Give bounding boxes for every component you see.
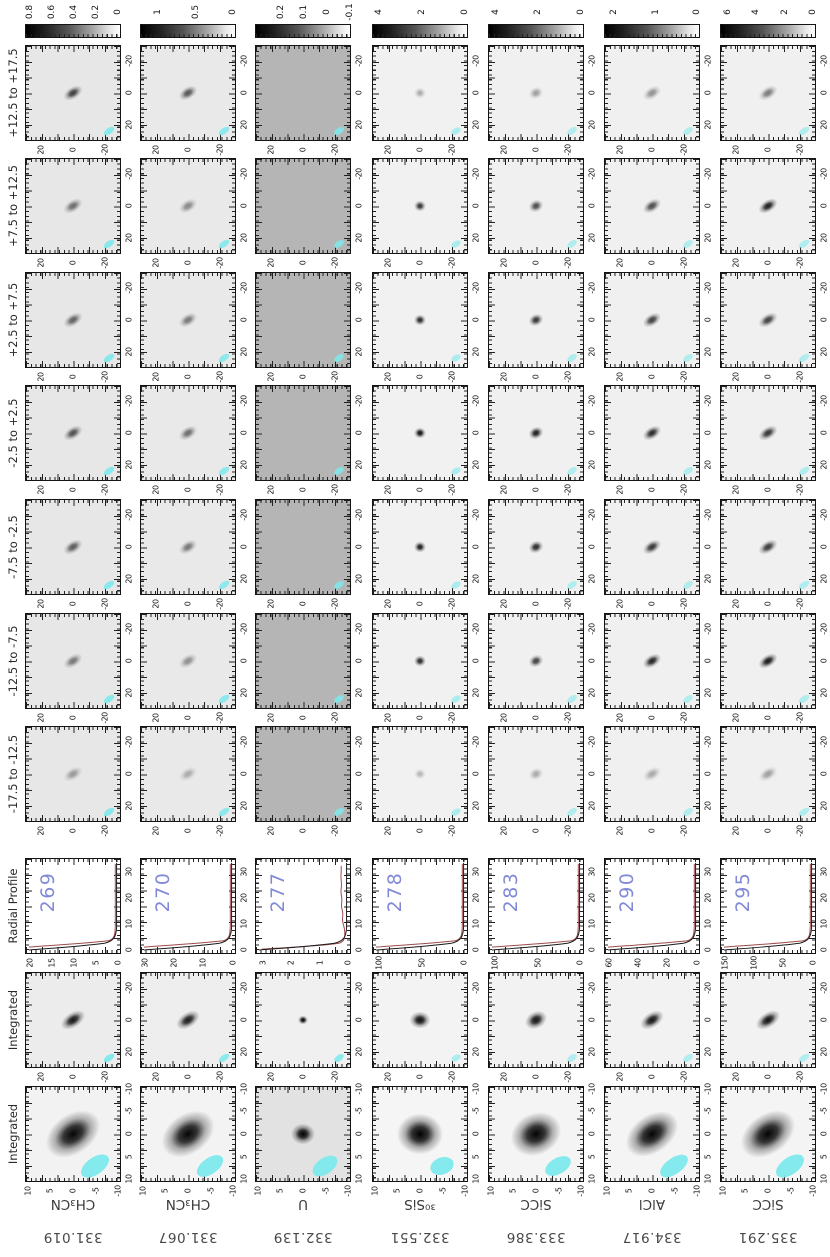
tick-marks xyxy=(26,614,120,620)
axis-tick-label-text: 0 xyxy=(240,318,249,323)
tick-marks xyxy=(605,1087,611,1181)
channel-map-panel xyxy=(604,385,700,481)
colorbar-tick-label-text: 2 xyxy=(417,9,427,15)
tick-marks xyxy=(26,386,32,480)
species-label-text: U xyxy=(298,1196,308,1212)
row-label-radial-profile-text: Radial Profile xyxy=(6,869,20,944)
tick-marks xyxy=(229,159,235,253)
tick-marks xyxy=(373,1061,467,1067)
axis-tick-label-text: 0 xyxy=(355,948,364,953)
tick-marks xyxy=(721,973,727,1067)
axis-tick-label-text: 20 xyxy=(384,258,393,267)
radial-count-label-text: 283 xyxy=(500,872,522,913)
axis-tick-label-text: -20 xyxy=(355,624,364,636)
axis-tick-label-text: 20 xyxy=(732,258,741,267)
axis-tick-label-text: 20 xyxy=(704,801,713,810)
species-label-text: SiCC xyxy=(520,1196,551,1212)
axis-tick-label-text: 0 xyxy=(240,1132,249,1137)
axis-tick-label-text: -20 xyxy=(820,56,829,68)
axis-tick-label-text: -20 xyxy=(472,624,481,636)
axis-tick-label-text: 20 xyxy=(472,1047,481,1056)
tick-marks xyxy=(693,46,699,140)
axis-tick-label-text: 10 xyxy=(370,1186,379,1195)
tick-marks xyxy=(577,1087,583,1181)
tick-marks xyxy=(489,815,583,821)
tick-marks xyxy=(373,702,467,708)
axis-tick-label-text: 20 xyxy=(820,894,829,903)
tick-marks xyxy=(605,46,611,140)
tick-marks xyxy=(489,159,583,165)
axis-tick-label-text: 0 xyxy=(299,829,308,834)
tick-marks xyxy=(577,500,583,594)
tick-marks xyxy=(489,273,495,367)
tick-marks xyxy=(344,273,350,367)
tick-marks xyxy=(344,973,350,1067)
axis-tick-label-text: 0 xyxy=(299,375,308,380)
tick-marks xyxy=(229,386,235,480)
axis-tick-label-text: -20 xyxy=(563,257,572,269)
tick-marks xyxy=(344,727,350,821)
radial-count-label-text: 290 xyxy=(616,872,638,913)
tick-marks xyxy=(256,500,350,506)
tick-marks xyxy=(141,386,235,392)
tick-marks xyxy=(693,614,699,708)
integrated-map-panel xyxy=(720,972,816,1068)
axis-tick-label-text: 5 xyxy=(741,1189,750,1194)
tick-marks xyxy=(26,1087,120,1093)
tick-marks xyxy=(141,1175,235,1181)
axis-tick-label-text: 0 xyxy=(764,602,773,607)
axis-tick-label-text: 0 xyxy=(472,318,481,323)
emission-blob xyxy=(527,424,546,441)
axis-tick-label-text: -5 xyxy=(206,1188,215,1195)
tick-marks xyxy=(461,159,467,253)
axis-tick-label-text: 20 xyxy=(170,958,179,967)
tick-marks xyxy=(489,614,583,620)
tick-marks xyxy=(489,34,583,37)
axis-tick-label-text: -20 xyxy=(100,144,109,156)
tick-marks xyxy=(141,588,235,594)
tick-marks xyxy=(344,500,350,594)
axis-tick-label-text: 0 xyxy=(125,431,134,436)
axis-tick-label-text: -20 xyxy=(820,737,829,749)
axis-tick-label-text: -10 xyxy=(229,1185,238,1197)
axis-tick-label-text: -20 xyxy=(355,169,364,181)
tick-marks xyxy=(373,46,467,52)
axis-tick-label-text: -10 xyxy=(577,1185,586,1197)
axis-tick-label-text: 0 xyxy=(704,1132,713,1137)
axis-tick-label-text: 20 xyxy=(588,347,597,356)
species-label-text: AlCl xyxy=(639,1196,665,1212)
axis-tick-label-text: 0 xyxy=(704,659,713,664)
tick-marks xyxy=(344,46,350,140)
axis-tick-label-text: -20 xyxy=(472,283,481,295)
axis-tick-label-text: 5 xyxy=(820,1154,829,1159)
tick-marks xyxy=(141,727,235,733)
tick-marks xyxy=(489,1175,583,1181)
axis-tick-label-text: 20 xyxy=(125,460,134,469)
channel-map-panel xyxy=(25,726,121,822)
axis-tick-label-text: 20 xyxy=(240,347,249,356)
axis-tick-label-text: 0 xyxy=(125,318,134,323)
axis-tick-label-text: -20 xyxy=(240,396,249,408)
axis-tick-label-text: -20 xyxy=(240,56,249,68)
integrated-zoom-panel xyxy=(488,1086,584,1182)
colorbar-tick-label-text: 0 xyxy=(692,9,702,15)
axis-tick-label-text: 0 xyxy=(704,318,713,323)
axis-tick-label-text: 20 xyxy=(37,826,46,835)
axis-tick-label-text: 0 xyxy=(69,148,78,153)
axis-tick-label-text: 20 xyxy=(663,958,672,967)
tick-marks xyxy=(114,1087,120,1181)
axis-tick-label-text: -20 xyxy=(795,484,804,496)
axis-tick-label-text: -20 xyxy=(215,1071,224,1083)
axis-tick-label-text: 20 xyxy=(355,233,364,242)
axis-tick-label-text: 20 xyxy=(125,233,134,242)
axis-tick-label-text: 0 xyxy=(532,829,541,834)
channel-map-figure: 0.80.60.40.20200-20-20020200-20-20020200… xyxy=(0,0,830,1257)
axis-tick-label-text: 10 xyxy=(69,958,78,967)
tick-marks xyxy=(256,973,262,1067)
tick-marks xyxy=(141,727,147,821)
axis-tick-label-text: 0 xyxy=(532,148,541,153)
axis-tick-label-text: 0 xyxy=(648,148,657,153)
channel-map-panel xyxy=(372,385,468,481)
axis-tick-label-text: 1 xyxy=(316,961,325,966)
axis-tick-label-text: 50 xyxy=(533,958,542,967)
emission-blob xyxy=(414,201,426,212)
axis-tick-label-text: -10 xyxy=(355,1083,364,1095)
channel-map-panel xyxy=(604,499,700,595)
axis-tick-label-text: 0 xyxy=(69,829,78,834)
tick-marks xyxy=(489,727,495,821)
tick-marks xyxy=(229,46,235,140)
axis-tick-label-text: -20 xyxy=(125,624,134,636)
emission-blob xyxy=(298,1016,308,1025)
axis-tick-label-text: 20 xyxy=(820,460,829,469)
axis-tick-label-text: 20 xyxy=(588,574,597,583)
axis-tick-label-text: 0 xyxy=(764,829,773,834)
tick-marks xyxy=(256,134,350,140)
tick-marks xyxy=(461,973,467,1067)
tick-marks xyxy=(373,273,379,367)
axis-tick-label-text: 20 xyxy=(152,1072,161,1081)
channel-map-panel xyxy=(25,499,121,595)
axis-tick-label-text: 20 xyxy=(125,120,134,129)
integrated-zoom-panel xyxy=(255,1086,351,1182)
colorbar-tick-label-text: 4 xyxy=(491,9,501,15)
axis-tick-label-text: -20 xyxy=(820,283,829,295)
channel-map-panel xyxy=(604,158,700,254)
axis-tick-label-text: 0 xyxy=(764,375,773,380)
tick-marks xyxy=(256,159,262,253)
row-label-channel-text: -2.5 to +2.5 xyxy=(6,398,20,467)
axis-tick-label-text: -5 xyxy=(321,1188,330,1195)
tick-marks xyxy=(721,474,815,480)
tick-marks xyxy=(26,247,120,253)
axis-tick-label-text: 0 xyxy=(299,148,308,153)
axis-tick-label-text: -20 xyxy=(563,1071,572,1083)
axis-tick-label-text: 20 xyxy=(384,599,393,608)
axis-tick-label-text: 30 xyxy=(588,868,597,877)
integrated-zoom-panel xyxy=(25,1086,121,1182)
channel-map-panel xyxy=(140,158,236,254)
tick-marks xyxy=(114,727,120,821)
channel-map-panel xyxy=(720,272,816,368)
tick-marks xyxy=(256,588,350,594)
axis-tick-label-text: 10 xyxy=(704,1175,713,1184)
axis-tick-label-text: 0 xyxy=(648,716,657,721)
axis-tick-label-text: 20 xyxy=(37,599,46,608)
axis-tick-label-text: -5 xyxy=(91,1188,100,1195)
axis-tick-label-text: -10 xyxy=(114,1185,123,1197)
tick-marks xyxy=(721,500,727,594)
tick-marks xyxy=(605,386,611,480)
tick-marks xyxy=(605,614,611,708)
axis-tick-label-text: 5 xyxy=(625,1189,634,1194)
tick-marks xyxy=(605,1061,699,1067)
tick-marks xyxy=(721,134,815,140)
tick-marks xyxy=(721,588,815,594)
axis-tick-label-text: 20 xyxy=(240,120,249,129)
axis-tick-label-text: -20 xyxy=(100,257,109,269)
frequency-label-text: 332.139 xyxy=(273,1229,332,1245)
axis-tick-label-text: 20 xyxy=(152,485,161,494)
axis-tick-label-text: -20 xyxy=(330,1071,339,1083)
tick-marks xyxy=(373,727,379,821)
axis-tick-label-text: -20 xyxy=(588,56,597,68)
axis-tick-label-text: -20 xyxy=(240,737,249,749)
axis-tick-label-text: -10 xyxy=(461,1185,470,1197)
axis-tick-label-text: -20 xyxy=(704,169,713,181)
axis-tick-label-text: 0 xyxy=(764,1075,773,1080)
tick-marks xyxy=(721,727,815,733)
axis-tick-label-text: -20 xyxy=(795,144,804,156)
channel-map-panel xyxy=(720,726,816,822)
tick-marks xyxy=(141,159,147,253)
tick-marks xyxy=(373,815,467,821)
tick-marks xyxy=(141,159,235,165)
axis-tick-label-text: 20 xyxy=(384,485,393,494)
tick-marks xyxy=(256,386,262,480)
axis-tick-label-text: 0 xyxy=(184,716,193,721)
axis-tick-label-text: 0 xyxy=(532,375,541,380)
axis-tick-label-text: -20 xyxy=(795,598,804,610)
emission-blob xyxy=(58,1006,89,1033)
colorbar xyxy=(720,24,816,38)
axis-tick-label-text: 20 xyxy=(37,372,46,381)
axis-tick-label-text: -10 xyxy=(820,1083,829,1095)
axis-tick-label-text: -20 xyxy=(330,371,339,383)
axis-tick-label-text: -20 xyxy=(355,737,364,749)
axis-tick-label-text: -5 xyxy=(670,1188,679,1195)
axis-tick-label-text: -20 xyxy=(588,983,597,995)
tick-marks xyxy=(721,1061,815,1067)
axis-tick-label-text: 5 xyxy=(393,1189,402,1194)
axis-tick-label-text: 20 xyxy=(240,688,249,697)
axis-tick-label-text: 0 xyxy=(704,431,713,436)
tick-marks xyxy=(256,1087,262,1181)
axis-tick-label-text: -10 xyxy=(588,1083,597,1095)
channel-map-panel xyxy=(488,499,584,595)
axis-tick-label-text: 0 xyxy=(355,91,364,96)
tick-marks xyxy=(489,588,583,594)
tick-marks xyxy=(141,1087,147,1181)
axis-tick-label-text: 0 xyxy=(416,716,425,721)
axis-tick-label-text: 0 xyxy=(588,772,597,777)
channel-map-panel xyxy=(255,272,351,368)
tick-marks xyxy=(256,46,350,52)
axis-tick-label-text: -20 xyxy=(472,737,481,749)
tick-marks xyxy=(141,614,235,620)
axis-tick-label-text: -20 xyxy=(704,283,713,295)
tick-marks xyxy=(256,1087,350,1093)
emission-blob xyxy=(640,83,663,104)
emission-blob xyxy=(176,83,199,104)
channel-map-panel xyxy=(720,385,816,481)
axis-tick-label-text: 20 xyxy=(37,713,46,722)
axis-tick-label-text: 20 xyxy=(704,233,713,242)
channel-map-panel xyxy=(255,499,351,595)
axis-tick-label-text: 0 xyxy=(125,659,134,664)
tick-marks xyxy=(693,273,699,367)
axis-tick-label-text: 10 xyxy=(602,1186,611,1195)
channel-map-panel xyxy=(488,726,584,822)
axis-tick-label-text: -20 xyxy=(472,396,481,408)
axis-tick-label-text: -10 xyxy=(125,1083,134,1095)
axis-tick-label-text: -5 xyxy=(240,1108,249,1115)
axis-tick-label-text: 0 xyxy=(355,1132,364,1137)
axis-tick-label-text: 5 xyxy=(588,1154,597,1159)
axis-tick-label-text: -20 xyxy=(355,396,364,408)
axis-tick-label-text: -20 xyxy=(820,396,829,408)
tick-marks xyxy=(489,1061,583,1067)
colorbar-tick-label-text: 0 xyxy=(576,9,586,15)
axis-tick-label-text: 100 xyxy=(750,956,759,970)
channel-map-panel xyxy=(372,726,468,822)
channel-map-panel xyxy=(720,45,816,141)
tick-marks xyxy=(489,46,495,140)
tick-marks xyxy=(344,386,350,480)
tick-marks xyxy=(114,159,120,253)
tick-marks xyxy=(461,386,467,480)
axis-tick-label-text: -10 xyxy=(240,1083,249,1095)
axis-tick-label-text: -20 xyxy=(447,257,456,269)
tick-marks xyxy=(605,386,699,392)
axis-tick-label-text: -20 xyxy=(563,484,572,496)
axis-tick-label-text: 20 xyxy=(588,894,597,903)
channel-map-panel xyxy=(140,726,236,822)
tick-marks xyxy=(577,46,583,140)
tick-marks xyxy=(721,46,727,140)
axis-tick-label-text: 20 xyxy=(588,801,597,810)
tick-marks xyxy=(114,273,120,367)
tick-marks xyxy=(373,361,467,367)
axis-tick-label-text: 20 xyxy=(267,599,276,608)
tick-marks xyxy=(141,973,235,979)
tick-marks xyxy=(141,273,147,367)
colorbar-tick-label-text: -0.1 xyxy=(345,3,355,21)
tick-marks xyxy=(489,46,583,52)
axis-tick-label-text: 10 xyxy=(355,920,364,929)
emission-blob xyxy=(61,650,85,671)
tick-marks xyxy=(577,973,583,1067)
axis-tick-label-text: -20 xyxy=(795,257,804,269)
emission-blob xyxy=(397,1114,443,1155)
axis-tick-label-text: 0 xyxy=(416,829,425,834)
tick-marks xyxy=(489,973,583,979)
axis-tick-label-text: 20 xyxy=(500,258,509,267)
tick-marks xyxy=(26,1175,120,1181)
axis-tick-label-text: 5 xyxy=(276,1189,285,1194)
tick-marks xyxy=(721,361,815,367)
row-label-integrated-text: Integrated xyxy=(6,990,20,1050)
axis-tick-label-text: -20 xyxy=(704,624,713,636)
tick-marks xyxy=(141,134,235,140)
axis-tick-label-text: 20 xyxy=(384,145,393,154)
axis-tick-label-text: 0 xyxy=(808,961,817,966)
axis-tick-label-text: 5 xyxy=(92,961,101,966)
axis-tick-label-text: 20 xyxy=(472,574,481,583)
channel-map-panel xyxy=(140,45,236,141)
axis-tick-label-text: 40 xyxy=(634,958,643,967)
axis-tick-label-text: 0 xyxy=(532,602,541,607)
axis-tick-label-text: 20 xyxy=(472,688,481,697)
axis-tick-label-text: 10 xyxy=(125,1175,134,1184)
radial-count-label-text: 270 xyxy=(152,872,174,913)
axis-tick-label-text: 20 xyxy=(616,826,625,835)
species-label-text: SiCC xyxy=(752,1196,783,1212)
emission-blob xyxy=(176,310,199,331)
integrated-zoom-panel xyxy=(604,1086,700,1182)
channel-map-panel xyxy=(604,45,700,141)
axis-tick-label-text: 20 xyxy=(500,485,509,494)
tick-marks xyxy=(721,273,815,279)
frequency-label-text: 334.917 xyxy=(622,1229,681,1245)
tick-marks xyxy=(373,1087,467,1093)
tick-marks xyxy=(26,386,120,392)
axis-tick-label-text: 0 xyxy=(648,261,657,266)
tick-marks xyxy=(489,1087,583,1093)
axis-tick-label-text: 10 xyxy=(588,920,597,929)
axis-tick-label-text: -20 xyxy=(215,257,224,269)
colorbar-tick-label-text: 0.1 xyxy=(299,5,309,19)
tick-marks xyxy=(721,273,727,367)
axis-tick-label-text: 20 xyxy=(152,145,161,154)
tick-marks xyxy=(256,500,262,594)
axis-tick-label-text: 0 xyxy=(240,431,249,436)
axis-tick-label-text: -20 xyxy=(215,484,224,496)
tick-marks xyxy=(256,361,350,367)
axis-tick-label-text: 0 xyxy=(704,1018,713,1023)
axis-tick-label-text: -5 xyxy=(820,1108,829,1115)
tick-marks xyxy=(141,500,147,594)
axis-tick-label-text: 0 xyxy=(299,1075,308,1080)
axis-tick-label-text: 20 xyxy=(616,599,625,608)
tick-marks xyxy=(605,273,611,367)
axis-tick-label-text: 0 xyxy=(125,204,134,209)
axis-tick-label-text: 20 xyxy=(152,713,161,722)
axis-tick-label-text: 20 xyxy=(472,801,481,810)
axis-tick-label-text: 0 xyxy=(299,261,308,266)
tick-marks xyxy=(605,727,611,821)
axis-tick-label-text: 30 xyxy=(704,868,713,877)
species-label-text: CH₃CN xyxy=(51,1196,96,1212)
axis-tick-label-text: 0 xyxy=(532,261,541,266)
axis-tick-label-text: -20 xyxy=(330,257,339,269)
axis-tick-label-text: 20 xyxy=(472,120,481,129)
axis-tick-label-text: 150 xyxy=(720,956,729,970)
